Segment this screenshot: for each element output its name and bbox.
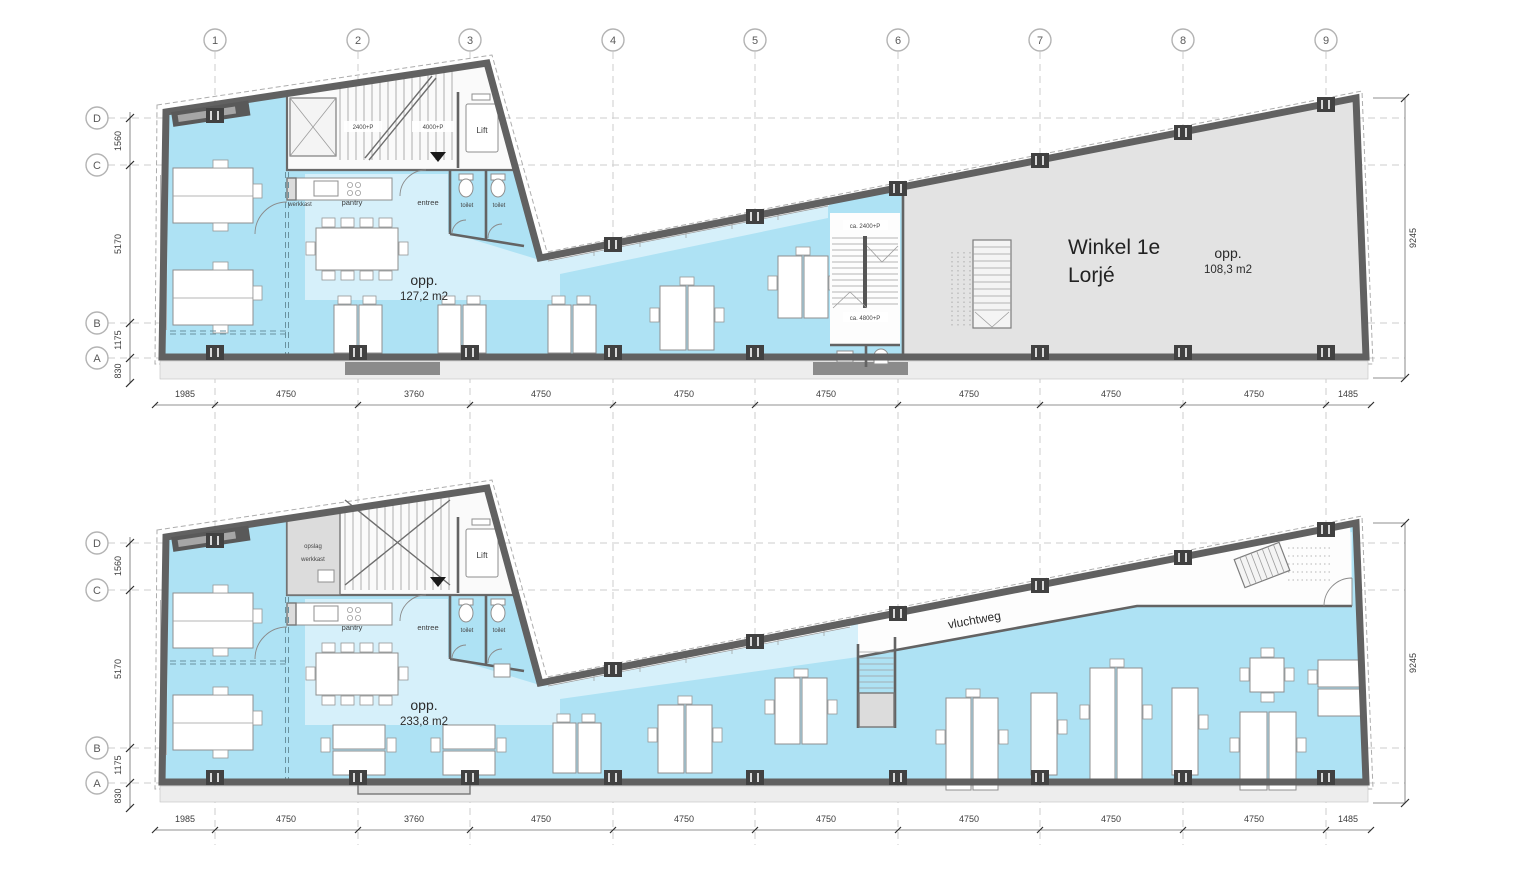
area-label-2: opp. xyxy=(410,697,437,713)
dim-left-5170: 5170 xyxy=(113,234,123,254)
dim-b9: 4750 xyxy=(1244,389,1264,399)
dim-left2-830: 830 xyxy=(113,788,123,803)
dim-b1: 1985 xyxy=(175,389,195,399)
bottom-dimensions-1: 1985 4750 3760 4750 4750 4750 4750 4750 … xyxy=(152,389,1374,408)
opslag-label: opslag xyxy=(304,544,322,550)
right-dimension-1: 9245 xyxy=(1373,94,1418,382)
grid-row-bubbles-2: D C B A xyxy=(86,532,108,794)
entree-label: entree xyxy=(417,198,438,207)
floorplan-drawing: 1 2 3 4 5 6 7 8 9 2400+P 4000+P xyxy=(0,0,1516,878)
grid-column-bubbles: 1 2 3 4 5 6 7 8 9 xyxy=(204,29,1337,51)
grid-row-D-2: D xyxy=(93,538,101,550)
right-dimension-2: 9245 xyxy=(1373,519,1418,807)
grid-col-2: 2 xyxy=(355,35,361,47)
stair2-top-label: ca. 2400+P xyxy=(850,224,881,230)
grid-col-3: 3 xyxy=(467,35,473,47)
pantry-label: pantry xyxy=(342,198,363,207)
area-label: opp. xyxy=(410,272,437,288)
dim-b3: 3760 xyxy=(404,389,424,399)
left-dimensions-1: 1560 5170 1175 830 xyxy=(113,112,134,387)
lift-label: Lift xyxy=(476,125,488,135)
dim2-b8: 4750 xyxy=(1101,814,1121,824)
storage-box xyxy=(290,98,336,156)
dim-b4: 4750 xyxy=(531,389,551,399)
desk-cluster xyxy=(173,160,262,231)
grid-row-bubbles-1: D C B A xyxy=(86,107,108,369)
dim-b7: 4750 xyxy=(959,389,979,399)
grid-col-6: 6 xyxy=(895,35,901,47)
toilet2-label: toilet xyxy=(493,203,506,209)
grid-col-4: 4 xyxy=(610,35,616,47)
dim2-b10: 1485 xyxy=(1338,814,1358,824)
winkel-area-label: opp. xyxy=(1214,245,1241,261)
grid-col-5: 5 xyxy=(752,35,758,47)
stair-level-label-2: 4000+P xyxy=(423,125,444,131)
bottom-dimensions-2: 1985 4750 3760 4750 4750 4750 4750 4750 … xyxy=(152,814,1374,833)
grid-row-A-2: A xyxy=(93,778,101,790)
dim-b8: 4750 xyxy=(1101,389,1121,399)
toilet1-label: toilet xyxy=(461,203,474,209)
winkel-name-line1: Winkel 1e xyxy=(1068,236,1160,259)
toilet1-label-2: toilet xyxy=(461,628,474,634)
stair-level-label-1: 2400+P xyxy=(353,125,374,131)
grid-row-D: D xyxy=(93,113,101,125)
dim2-b6: 4750 xyxy=(816,814,836,824)
dim2-b2: 4750 xyxy=(276,814,296,824)
dim2-b4: 4750 xyxy=(531,814,551,824)
pantry-counter-2 xyxy=(287,603,392,625)
dim-left-830: 830 xyxy=(113,363,123,378)
winkel-area-value: 108,3 m2 xyxy=(1204,264,1252,276)
dim2-b7: 4750 xyxy=(959,814,979,824)
entree2-label: entree xyxy=(417,623,438,632)
grid-col-7: 7 xyxy=(1037,35,1043,47)
secondary-stair: ca. 2400+P ca. 4800+P toilet xyxy=(830,213,900,367)
floor-plan-2: Lift xyxy=(86,480,1418,833)
stair2-bottom-label: ca. 4800+P xyxy=(850,316,881,322)
dim2-b5: 4750 xyxy=(674,814,694,824)
dim-left-1560: 1560 xyxy=(113,131,123,151)
dim2-b9: 4750 xyxy=(1244,814,1264,824)
dim-b6: 4750 xyxy=(816,389,836,399)
pantry2-label: pantry xyxy=(342,623,363,632)
floor-plan-1: 2400+P 4000+P Lift xyxy=(86,55,1418,408)
area-value: 127,2 m2 xyxy=(400,291,448,303)
grid-row-B: B xyxy=(93,318,100,330)
left-dimensions-2: 1560 5170 1175 830 xyxy=(113,537,134,812)
grid-row-A: A xyxy=(93,353,101,365)
pantry-counter xyxy=(287,178,392,200)
werkkast-label: werkkast xyxy=(287,202,312,208)
dim2-b3: 3760 xyxy=(404,814,424,824)
dim-left2-1175: 1175 xyxy=(113,755,123,774)
winkel-name-line2: Lorjé xyxy=(1068,264,1115,287)
desk-cluster xyxy=(173,687,262,758)
dim-b10: 1485 xyxy=(1338,389,1358,399)
plans-canvas: 1 2 3 4 5 6 7 8 9 2400+P 4000+P xyxy=(0,0,1516,878)
desk-cluster xyxy=(173,262,262,333)
grid-row-C-2: C xyxy=(93,585,101,597)
dim-b2: 4750 xyxy=(276,389,296,399)
winkel-area xyxy=(903,99,1363,354)
dim-left-1175: 1175 xyxy=(113,330,123,349)
area-value-2: 233,8 m2 xyxy=(400,716,448,728)
grid-row-B-2: B xyxy=(93,743,100,755)
dim-b5: 4750 xyxy=(674,389,694,399)
toilet2-label-2: toilet xyxy=(493,628,506,634)
lift2-label: Lift xyxy=(476,550,488,560)
dim-right-9245: 9245 xyxy=(1408,228,1418,248)
dim-left2-5170: 5170 xyxy=(113,659,123,679)
grid-col-1: 1 xyxy=(212,35,218,47)
desk-cluster xyxy=(173,585,262,656)
grid-col-8: 8 xyxy=(1180,35,1186,47)
dim-right2-9245: 9245 xyxy=(1408,653,1418,673)
grid-col-9: 9 xyxy=(1323,35,1329,47)
grid-row-C: C xyxy=(93,160,101,172)
werkkast2-label: werkkast xyxy=(300,557,325,563)
dim2-b1: 1985 xyxy=(175,814,195,824)
dim-left2-1560: 1560 xyxy=(113,556,123,576)
